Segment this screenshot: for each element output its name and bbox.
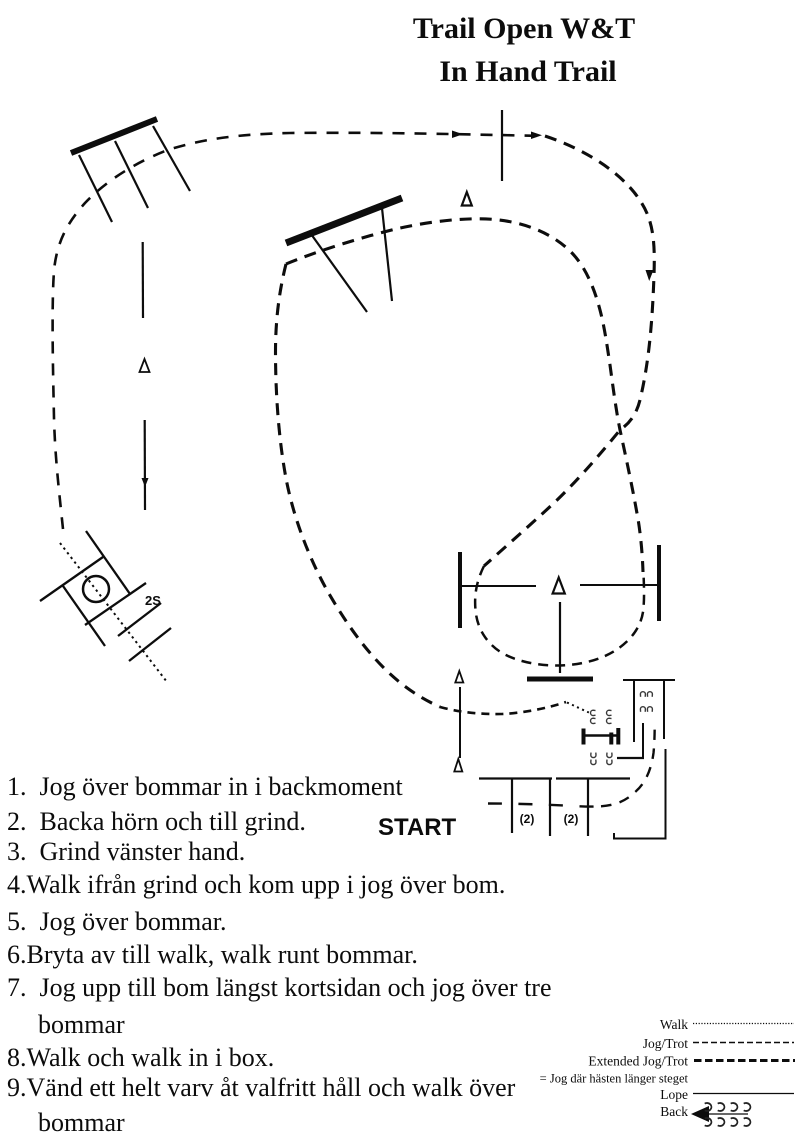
svg-text:9.Vänd ett helt varv åt valfri: 9.Vänd ett helt varv åt valfritt håll oc…: [7, 1073, 516, 1102]
svg-text:Jog/Trot: Jog/Trot: [643, 1036, 689, 1051]
svg-text:Lope: Lope: [660, 1087, 688, 1102]
svg-text:(2): (2): [520, 812, 535, 826]
svg-text:6.Bryta av till walk, walk run: 6.Bryta av till walk, walk runt bommar.: [7, 940, 418, 969]
svg-text:(2): (2): [564, 812, 579, 826]
svg-text:bommar: bommar: [38, 1108, 125, 1137]
svg-text:= Jog där hästen länger steget: = Jog där hästen länger steget: [540, 1072, 689, 1086]
svg-text:START: START: [378, 814, 457, 841]
svg-text:2. Backa hörn och till grind.: 2. Backa hörn och till grind.: [7, 807, 306, 836]
svg-text:1. Jog över bommar in i backm: 1. Jog över bommar in i backmoment: [7, 772, 403, 801]
svg-text:8.Walk och walk in i box.: 8.Walk och walk in i box.: [7, 1043, 274, 1072]
svg-text:bommar: bommar: [38, 1010, 125, 1039]
svg-text:2S: 2S: [145, 593, 161, 608]
svg-text:In Hand Trail: In Hand Trail: [439, 55, 616, 88]
svg-text:Walk: Walk: [660, 1017, 688, 1032]
svg-text:5. Jog över bommar.: 5. Jog över bommar.: [7, 907, 227, 936]
svg-text:4.Walk ifrån grind och kom upp: 4.Walk ifrån grind och kom upp i jog öve…: [7, 870, 505, 899]
svg-text:Back: Back: [660, 1104, 688, 1119]
svg-text:7. Jog upp till bom längst ko: 7. Jog upp till bom längst kortsidan och…: [7, 973, 552, 1002]
svg-text:Trail Open W&T: Trail Open W&T: [413, 12, 635, 45]
svg-text:Extended Jog/Trot: Extended Jog/Trot: [588, 1054, 688, 1069]
svg-text:3. Grind vänster hand.: 3. Grind vänster hand.: [7, 837, 245, 866]
